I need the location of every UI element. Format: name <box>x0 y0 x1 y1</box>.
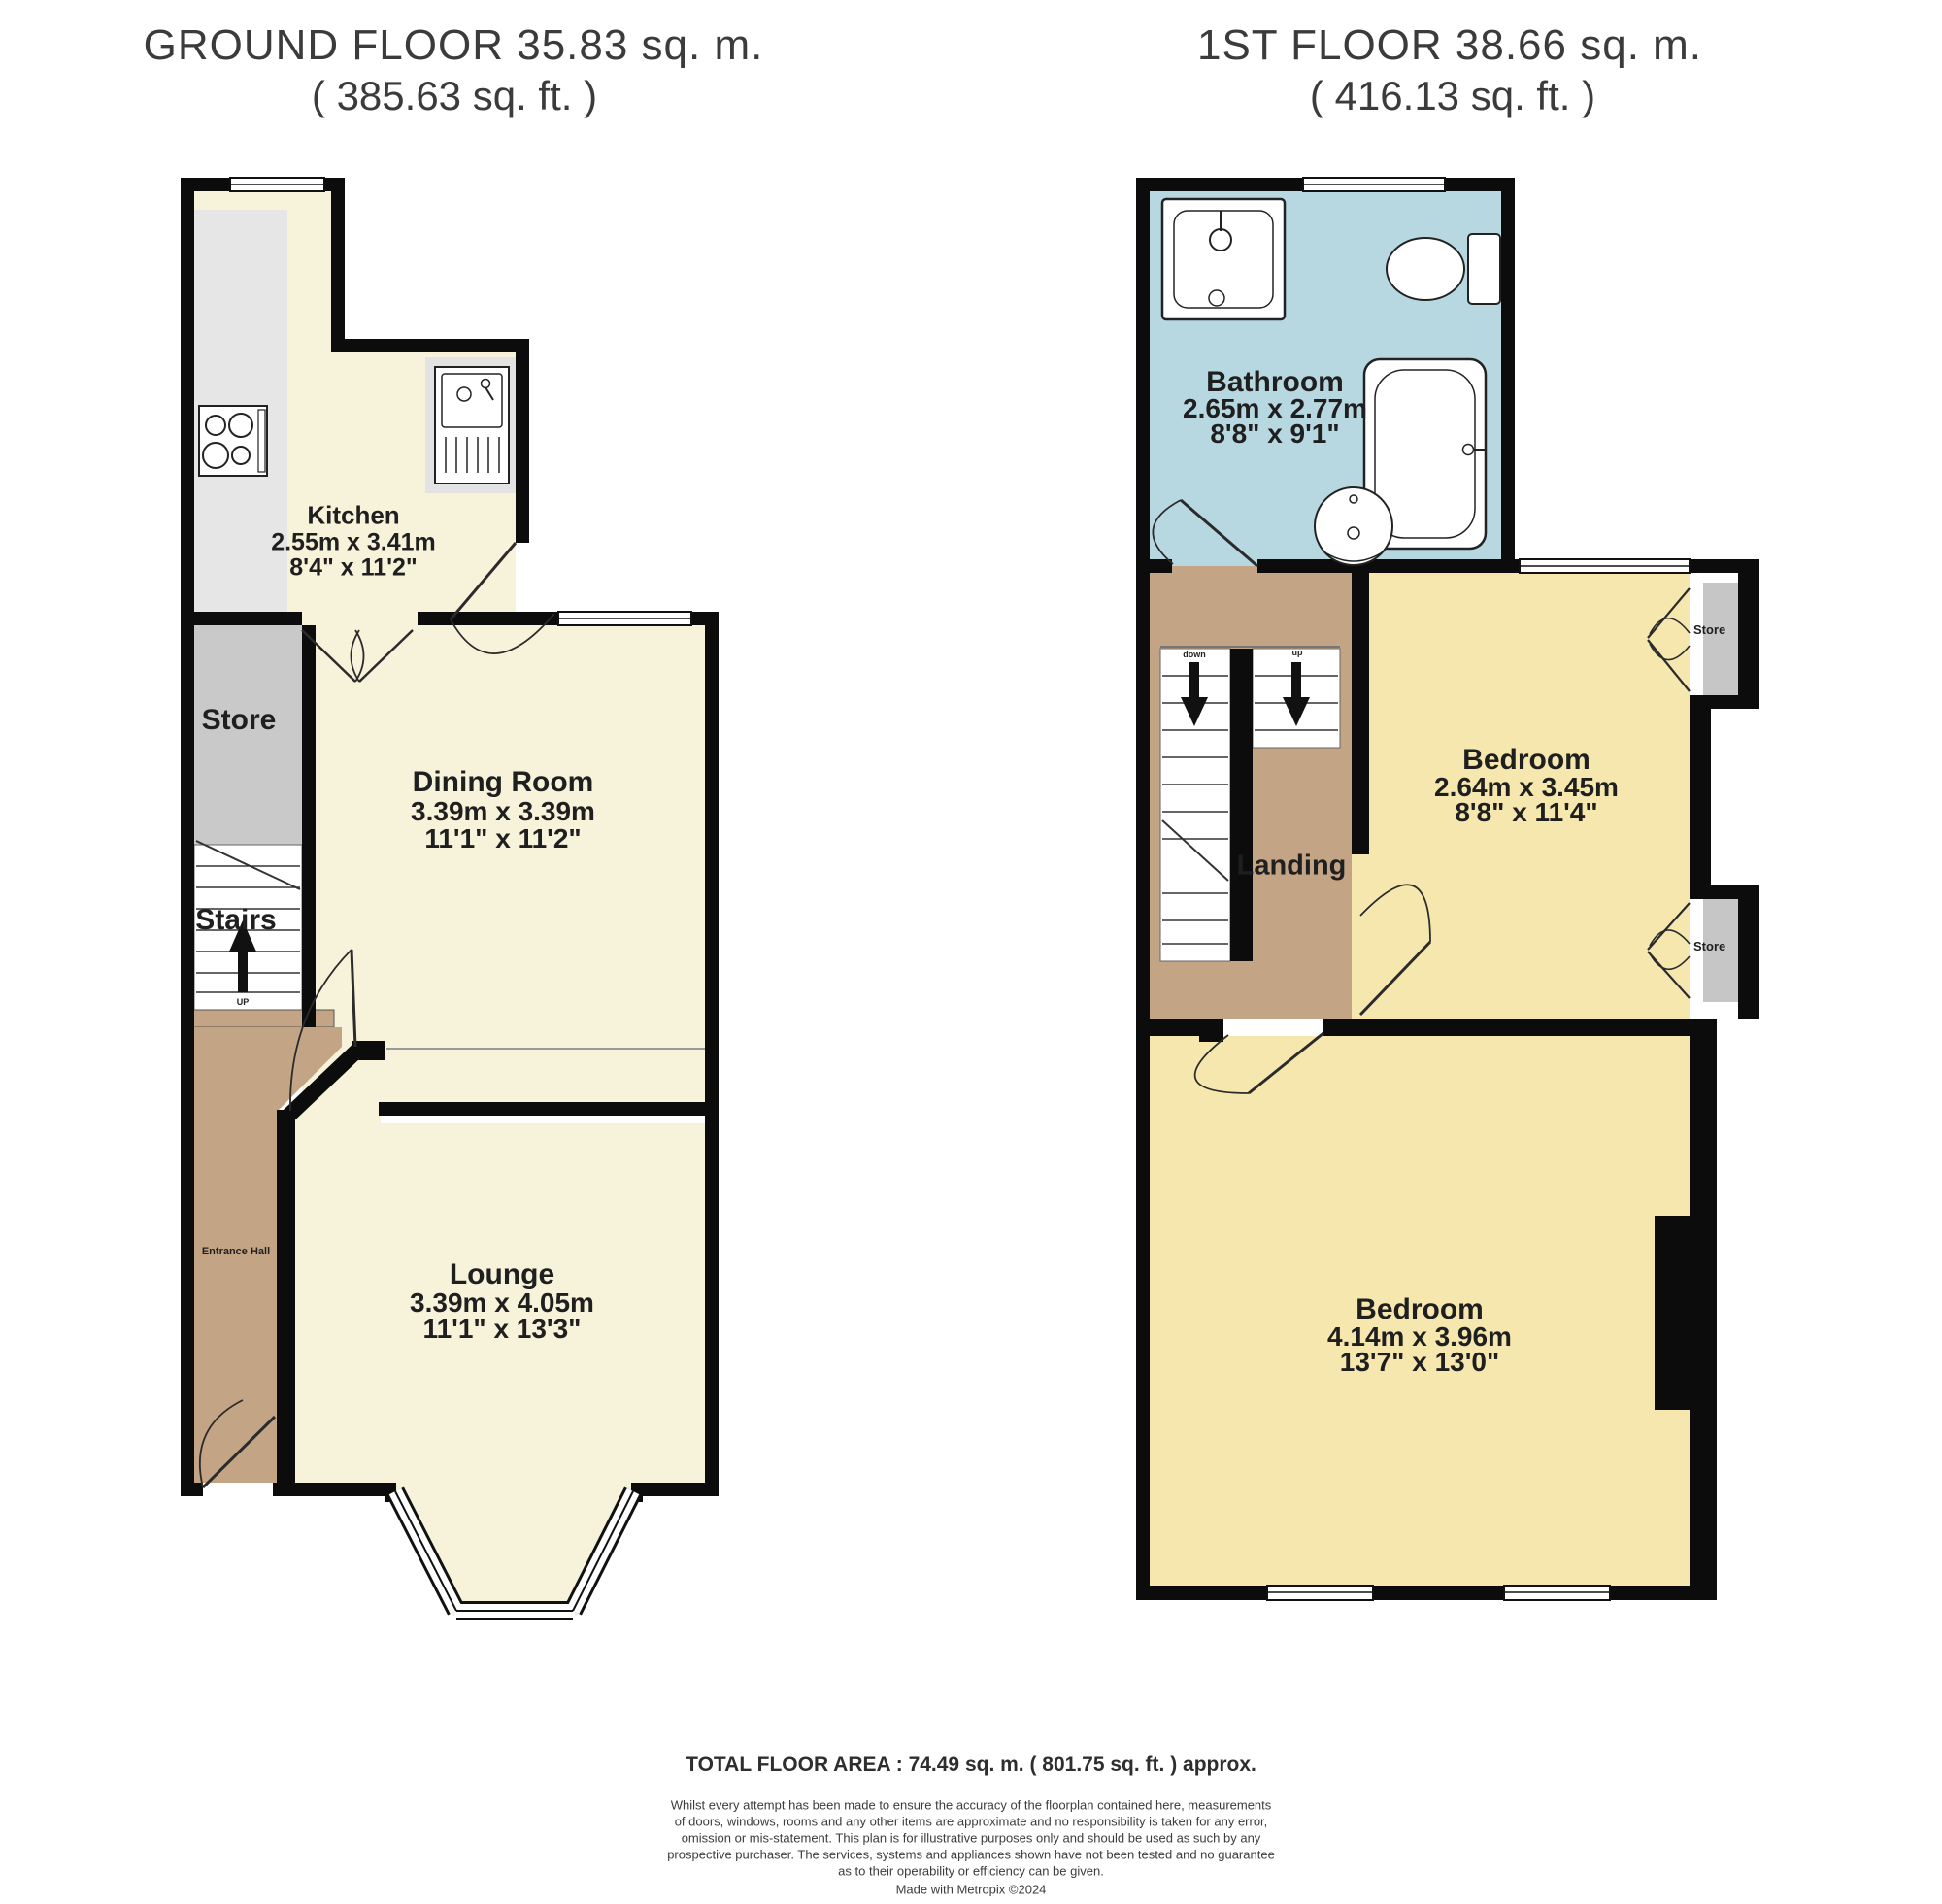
lounge-label: Lounge <box>450 1258 554 1291</box>
disclaimer-line-3: omission or mis-statement. This plan is … <box>682 1831 1261 1846</box>
basin-icon <box>1315 487 1392 565</box>
bedroom1-dims-imperial: 8'8" x 11'4" <box>1455 797 1597 828</box>
hob-icon <box>199 406 267 476</box>
kitchen-dims-imperial: 8'4" x 11'2" <box>289 554 418 583</box>
lounge-dims-imperial: 11'1" x 13'3" <box>423 1314 582 1345</box>
stairs-label: Stairs <box>195 904 276 937</box>
store-top-floor <box>1703 583 1738 695</box>
floorplan-document: GROUND FLOOR 35.83 sq. m. ( 385.63 sq. f… <box>0 0 1942 1904</box>
store-bottom-label: Store <box>1693 939 1726 953</box>
dining-room-floor <box>302 625 705 1102</box>
bathroom-dims-imperial: 8'8" x 9'1" <box>1210 418 1339 450</box>
store-top-label: Store <box>1693 622 1726 637</box>
shower-icon <box>1162 199 1285 319</box>
dining-room-label: Dining Room <box>413 766 594 799</box>
ground-floor-subtitle: ( 385.63 sq. ft. ) <box>312 73 597 119</box>
entrance-hall-label: Entrance Hall <box>202 1246 270 1257</box>
landing-label: Landing <box>1237 851 1347 883</box>
first-floor-title: 1ST FLOOR 38.66 sq. m. <box>1197 21 1702 70</box>
stairs-up-text: up <box>1292 648 1303 657</box>
stairs-up-label: UP <box>237 997 250 1007</box>
disclaimer-line-5: as to their operability or efficiency ca… <box>838 1864 1104 1879</box>
metropix-credit: Made with Metropix ©2024 <box>896 1883 1047 1897</box>
kitchen-label: Kitchen <box>307 501 399 531</box>
ground-floor-title: GROUND FLOOR 35.83 sq. m. <box>144 21 764 70</box>
total-floor-area: TOTAL FLOOR AREA : 74.49 sq. m. ( 801.75… <box>686 1754 1256 1777</box>
disclaimer-line-2: of doors, windows, rooms and any other i… <box>675 1815 1268 1829</box>
stairs-down-text: down <box>1183 650 1206 659</box>
store-label: Store <box>202 704 277 737</box>
floorplan-graphics <box>0 0 1942 1904</box>
disclaimer-line-4: prospective purchaser. The services, sys… <box>667 1848 1275 1862</box>
first-floor-subtitle: ( 416.13 sq. ft. ) <box>1310 73 1595 119</box>
toilet-icon <box>1387 234 1500 304</box>
bedroom2-dims-imperial: 13'7" x 13'0" <box>1340 1347 1499 1378</box>
disclaimer-line-1: Whilst every attempt has been made to en… <box>671 1798 1272 1813</box>
ground-floor-plan <box>181 178 719 1616</box>
dining-room-dims-imperial: 11'1" x 11'2" <box>424 823 581 854</box>
sink-icon <box>435 367 509 484</box>
kitchen-dims-metric: 2.55m x 3.41m <box>271 529 436 557</box>
